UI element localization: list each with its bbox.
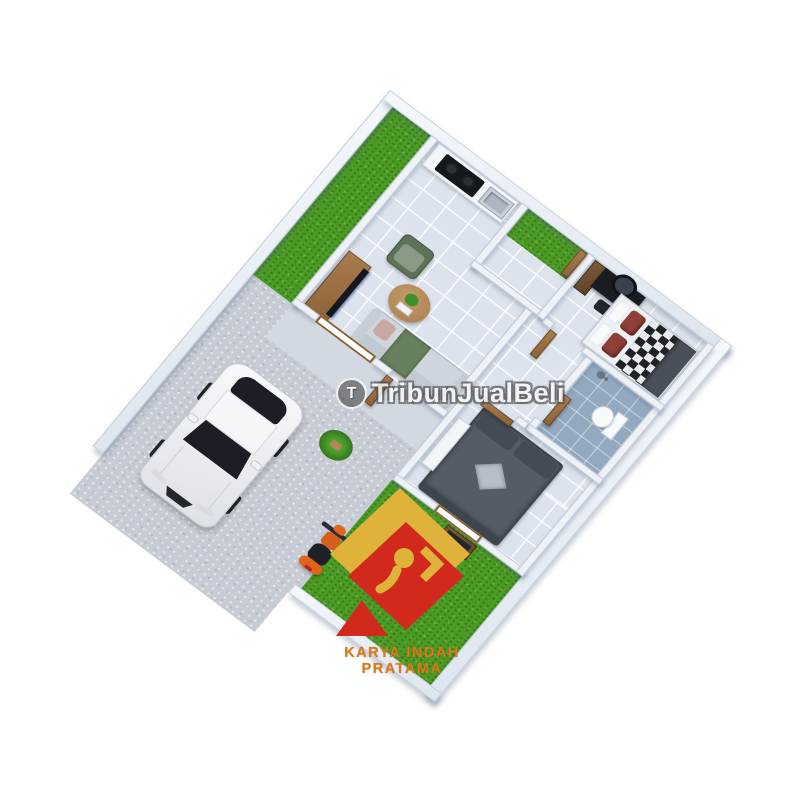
company-logo-icon <box>322 488 482 638</box>
render-canvas: T TribunJualBeli KARYA INDAH PRATAMA <box>0 0 800 800</box>
bed2-accent-pillow <box>475 463 507 489</box>
burner-icon <box>442 160 461 178</box>
logo-gold-dot <box>394 548 414 568</box>
company-logo: KARYA INDAH PRATAMA <box>318 488 486 677</box>
watermark-text: TribunJualBeli <box>372 378 565 409</box>
burner-icon <box>459 173 478 191</box>
armchair-cushion <box>392 243 426 274</box>
company-name: KARYA INDAH PRATAMA <box>318 645 486 677</box>
watermark: T TribunJualBeli <box>336 378 565 409</box>
watermark-badge-icon: T <box>336 378 367 409</box>
